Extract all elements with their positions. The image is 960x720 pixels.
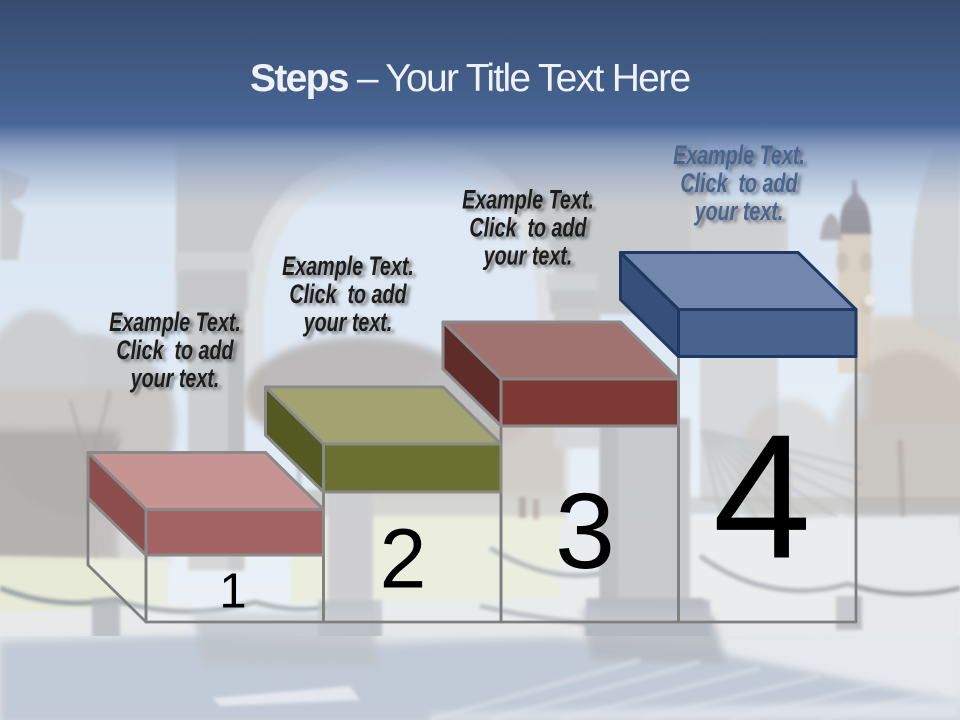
svg-text:Example Text.: Example Text. bbox=[462, 186, 594, 216]
svg-text:Example Text.: Example Text. bbox=[282, 252, 414, 282]
svg-text:Click to add: Click to add bbox=[289, 280, 407, 310]
svg-text:Example Text.: Example Text. bbox=[673, 141, 805, 171]
svg-text:2: 2 bbox=[380, 512, 427, 606]
svg-text:your text.: your text. bbox=[694, 197, 784, 227]
svg-text:Steps – Your Title Text Here: Steps – Your Title Text Here bbox=[250, 57, 689, 100]
svg-text:your text.: your text. bbox=[483, 242, 573, 272]
svg-text:Click to add: Click to add bbox=[680, 169, 798, 199]
svg-text:4: 4 bbox=[713, 398, 811, 596]
svg-text:Click to add: Click to add bbox=[116, 336, 234, 366]
svg-text:3: 3 bbox=[555, 470, 615, 591]
svg-text:Click to add: Click to add bbox=[469, 214, 587, 244]
svg-text:your text.: your text. bbox=[303, 308, 393, 338]
svg-text:Example Text.: Example Text. bbox=[109, 308, 241, 338]
svg-text:1: 1 bbox=[219, 565, 246, 619]
svg-text:your text.: your text. bbox=[130, 364, 220, 394]
